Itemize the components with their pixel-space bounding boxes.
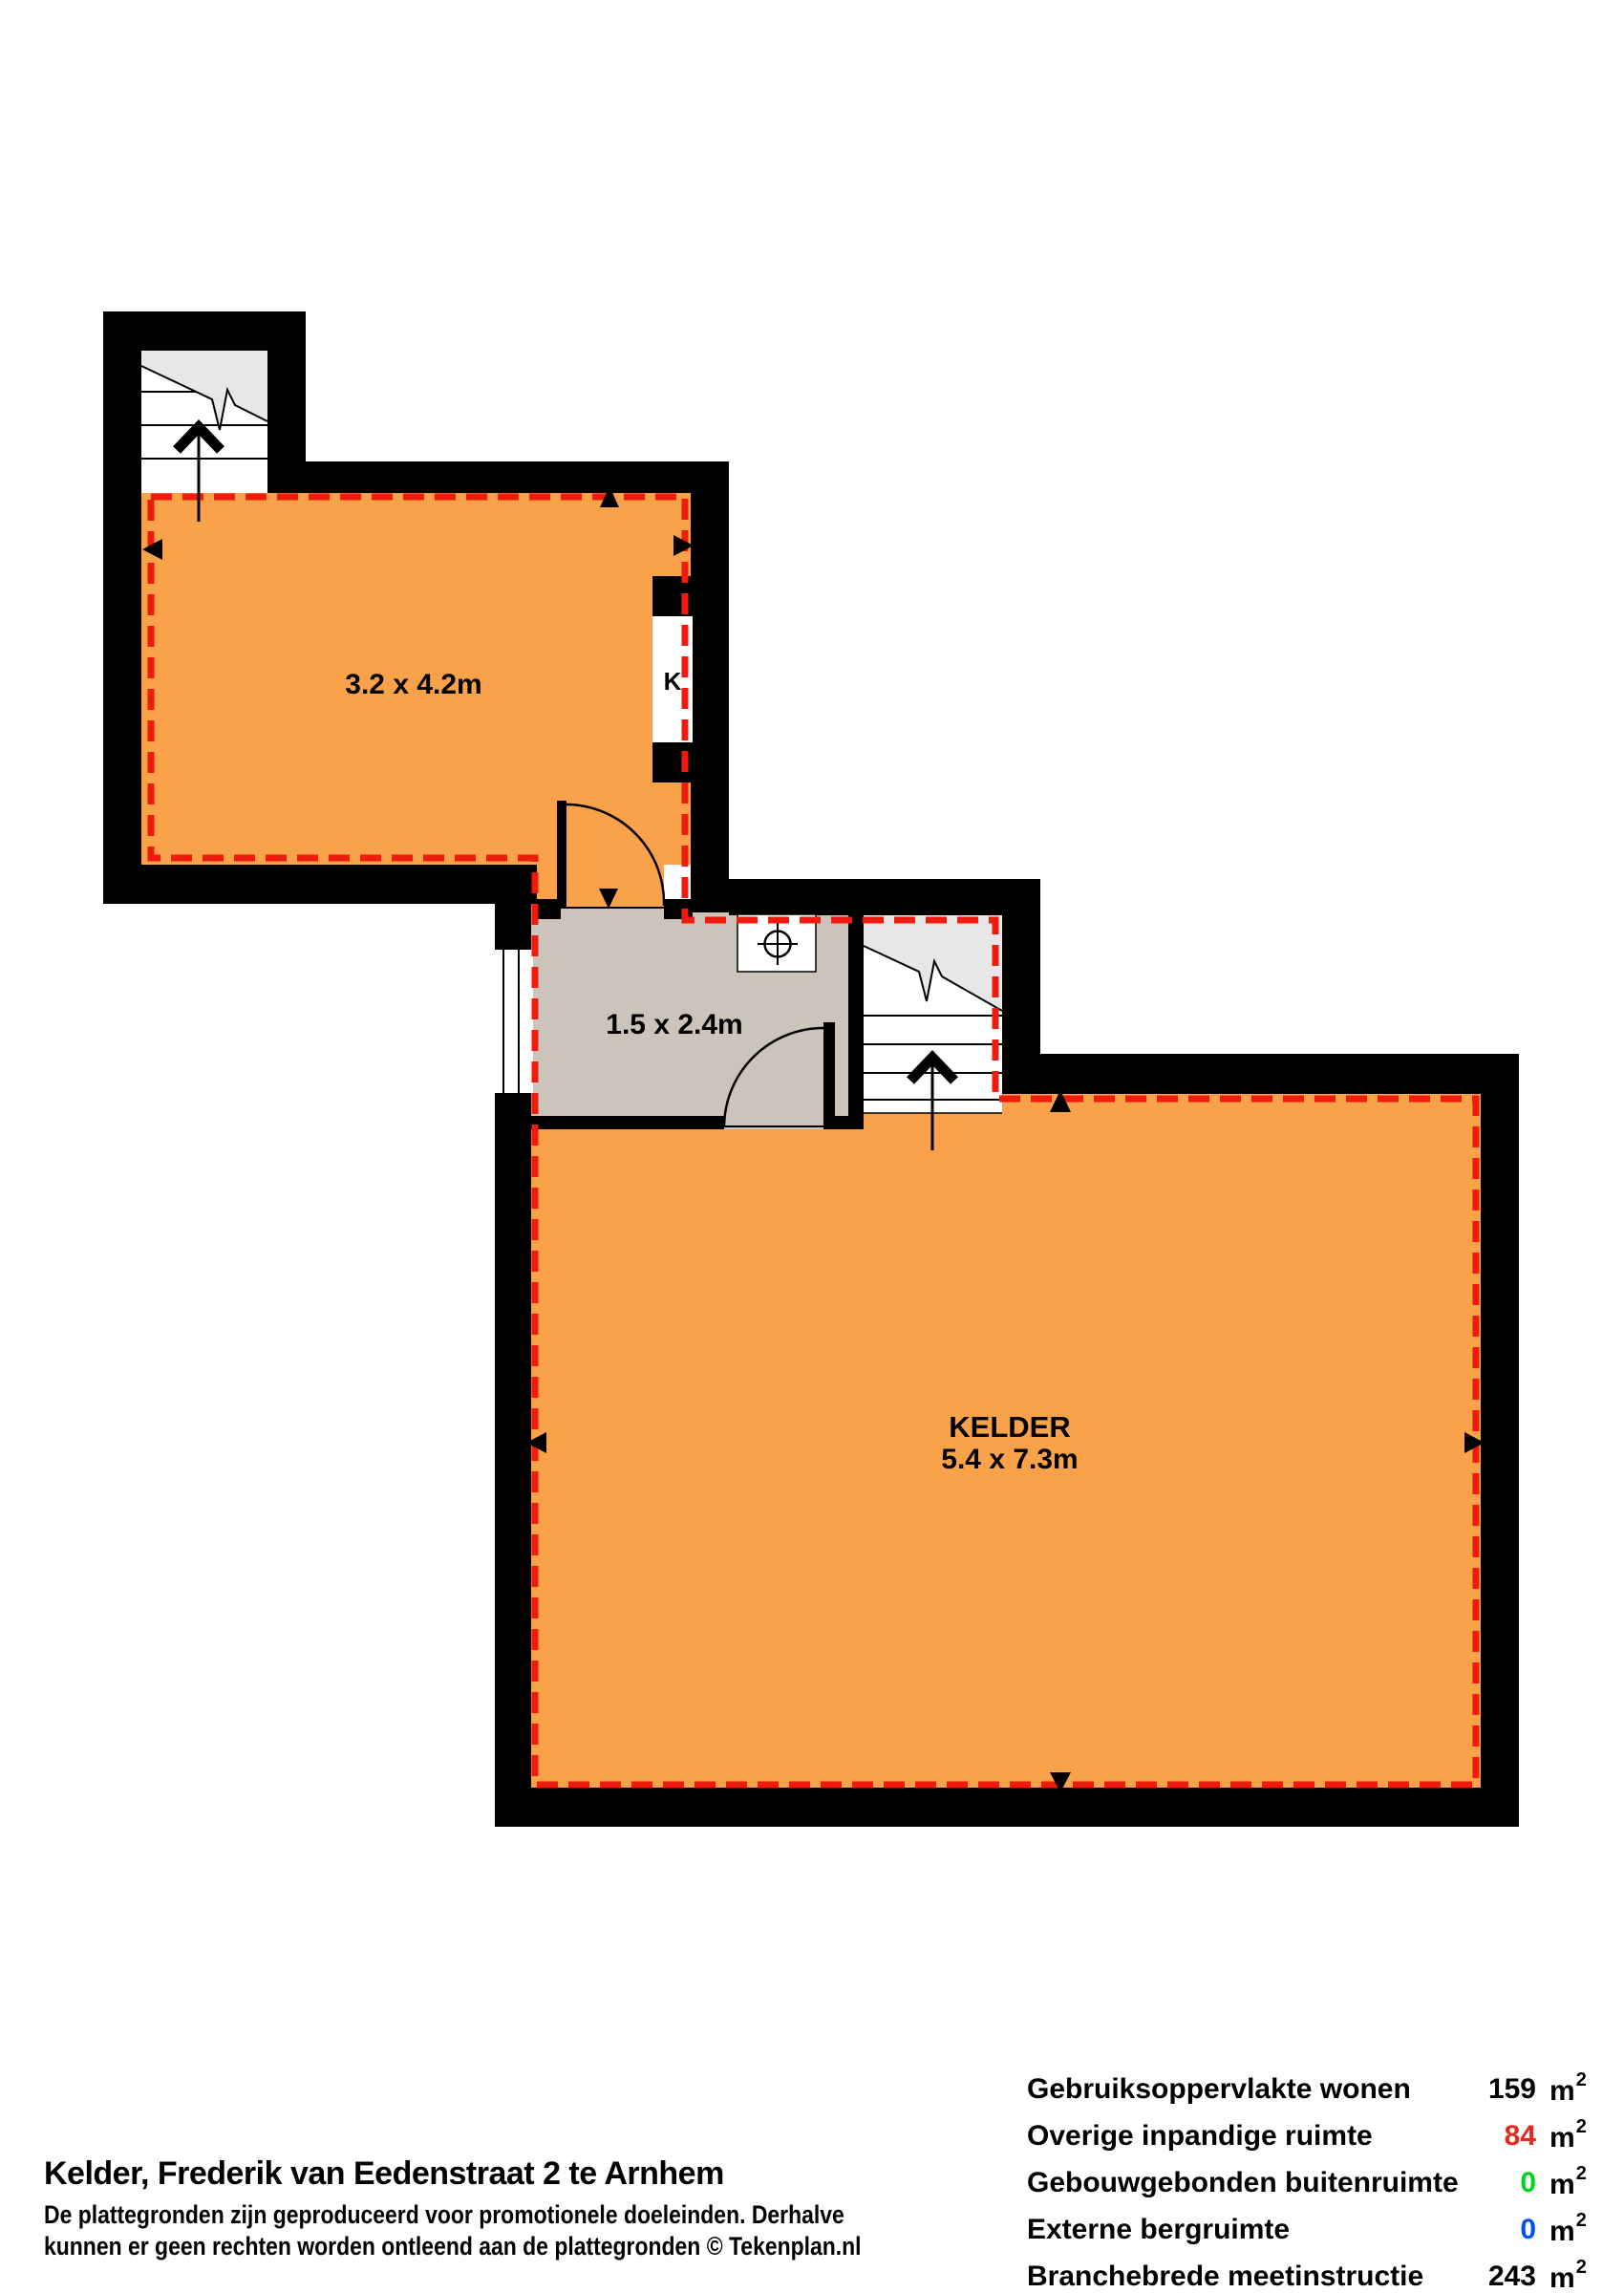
floorplan-page: 3.2 x 4.2m K 1.5 x 2.4m KELDER 5.4 x 7.3… xyxy=(0,0,1624,2293)
legend-unit: m2 xyxy=(1549,2214,1586,2248)
wall xyxy=(1002,1054,1519,1094)
kelder-name-label: KELDER xyxy=(949,1410,1070,1444)
legend-value: 0 xyxy=(1376,2214,1536,2246)
legend-unit: m2 xyxy=(1549,2261,1586,2293)
legend-unit: m2 xyxy=(1549,2073,1586,2108)
legend-value: 0 xyxy=(1376,2167,1536,2199)
legend-unit: m2 xyxy=(1549,2120,1586,2154)
legend-label: Externe bergruimte xyxy=(1027,2214,1290,2246)
legend-label: Overige inpandige ruimte xyxy=(1027,2120,1373,2153)
legend-row: Branchebrede meetinstructie 243 m2 xyxy=(0,2261,1624,2293)
window-opening xyxy=(489,950,533,1093)
legend-value: 243 xyxy=(1376,2261,1536,2293)
wall xyxy=(495,1788,1519,1827)
floorplan-drawing: 3.2 x 4.2m K 1.5 x 2.4m KELDER 5.4 x 7.3… xyxy=(0,0,1624,2293)
legend-row: Overige inpandige ruimte 84 m2 xyxy=(0,2120,1624,2160)
disclaimer-line: De plattegronden zijn geproduceerd voor … xyxy=(44,2200,844,2230)
closet-label: K xyxy=(664,667,682,696)
wall xyxy=(267,461,729,493)
door-leaf xyxy=(557,801,566,908)
wall xyxy=(103,865,537,904)
door-leaf xyxy=(823,1022,835,1129)
wall xyxy=(848,904,864,1129)
wall xyxy=(691,461,729,912)
page-title: Kelder, Frederik van Eedenstraat 2 te Ar… xyxy=(44,2155,724,2193)
wall xyxy=(103,311,141,904)
legend-label: Gebruiksoppervlakte wonen xyxy=(1027,2073,1411,2106)
kelder-dims-label: 5.4 x 7.3m xyxy=(941,1444,1078,1475)
wall xyxy=(729,879,1040,915)
room1-dims-label: 3.2 x 4.2m xyxy=(345,669,481,700)
disclaimer-line: kunnen er geen rechten worden ontleend a… xyxy=(44,2232,862,2261)
legend-value: 159 xyxy=(1376,2073,1536,2106)
legend-unit: m2 xyxy=(1549,2167,1586,2201)
legend-value: 84 xyxy=(1376,2120,1536,2153)
wall xyxy=(531,1116,724,1129)
legend-row: Gebruiksoppervlakte wonen 159 m2 xyxy=(0,2073,1624,2113)
wall xyxy=(1481,1054,1519,1825)
legend-label: Branchebrede meetinstructie xyxy=(1027,2261,1423,2293)
window xyxy=(489,950,533,1093)
hall-dims-label: 1.5 x 2.4m xyxy=(606,1009,742,1040)
